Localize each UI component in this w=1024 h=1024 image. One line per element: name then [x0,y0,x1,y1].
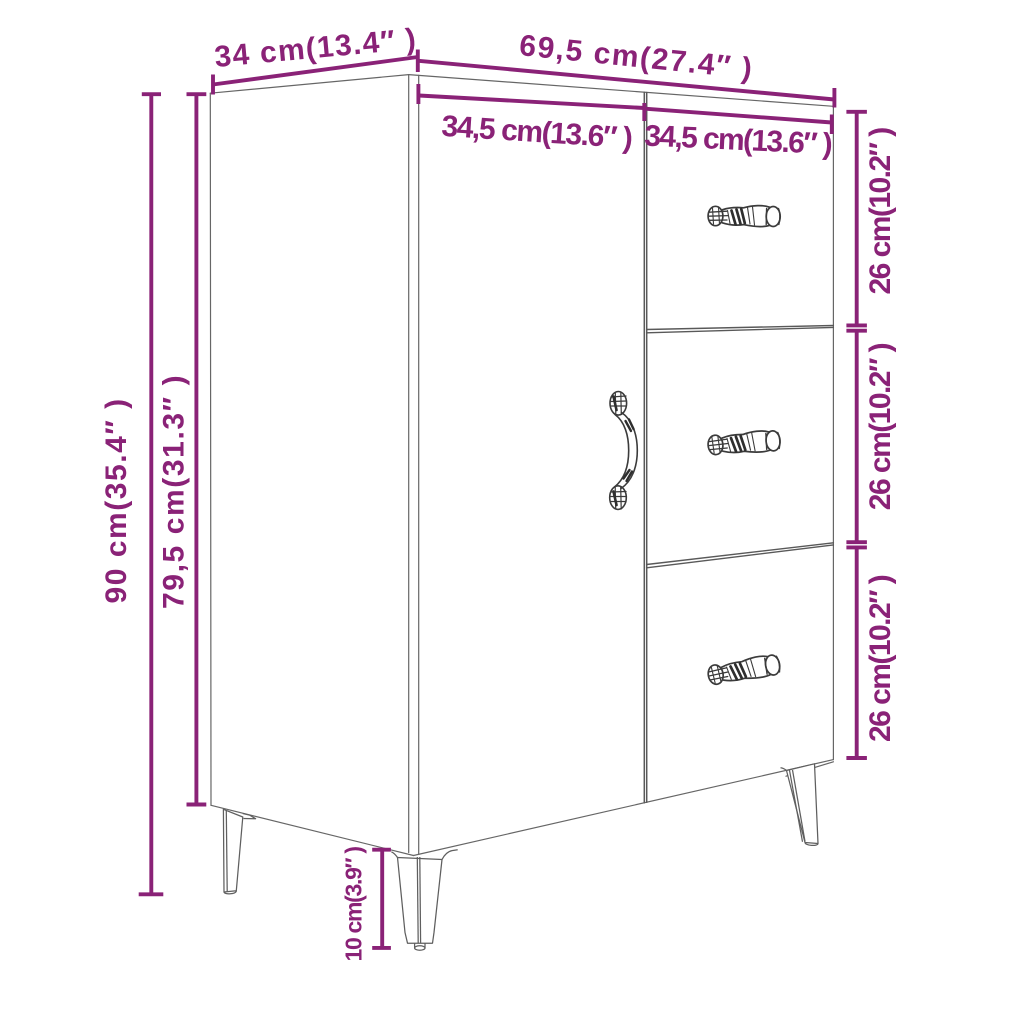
svg-text:26 cm(10.2″ ): 26 cm(10.2″ ) [864,128,897,295]
svg-text:34,5 cm(13.6″ ): 34,5 cm(13.6″ ) [644,120,833,161]
svg-text:69,5 cm(27.4″ ): 69,5 cm(27.4″ ) [518,29,755,86]
svg-text:26 cm(10.2″ ): 26 cm(10.2″ ) [864,575,897,742]
svg-text:90 cm(35.4″ ): 90 cm(35.4″ ) [100,397,133,603]
svg-text:34,5 cm(13.6″ ): 34,5 cm(13.6″ ) [441,110,633,155]
svg-text:34 cm(13.4″ ): 34 cm(13.4″ ) [213,23,418,74]
svg-text:79,5 cm(31.3″ ): 79,5 cm(31.3″ ) [158,374,191,609]
svg-text:26 cm(10.2″ ): 26 cm(10.2″ ) [864,343,897,510]
svg-text:10 cm(3.9″ ): 10 cm(3.9″ ) [341,847,367,962]
